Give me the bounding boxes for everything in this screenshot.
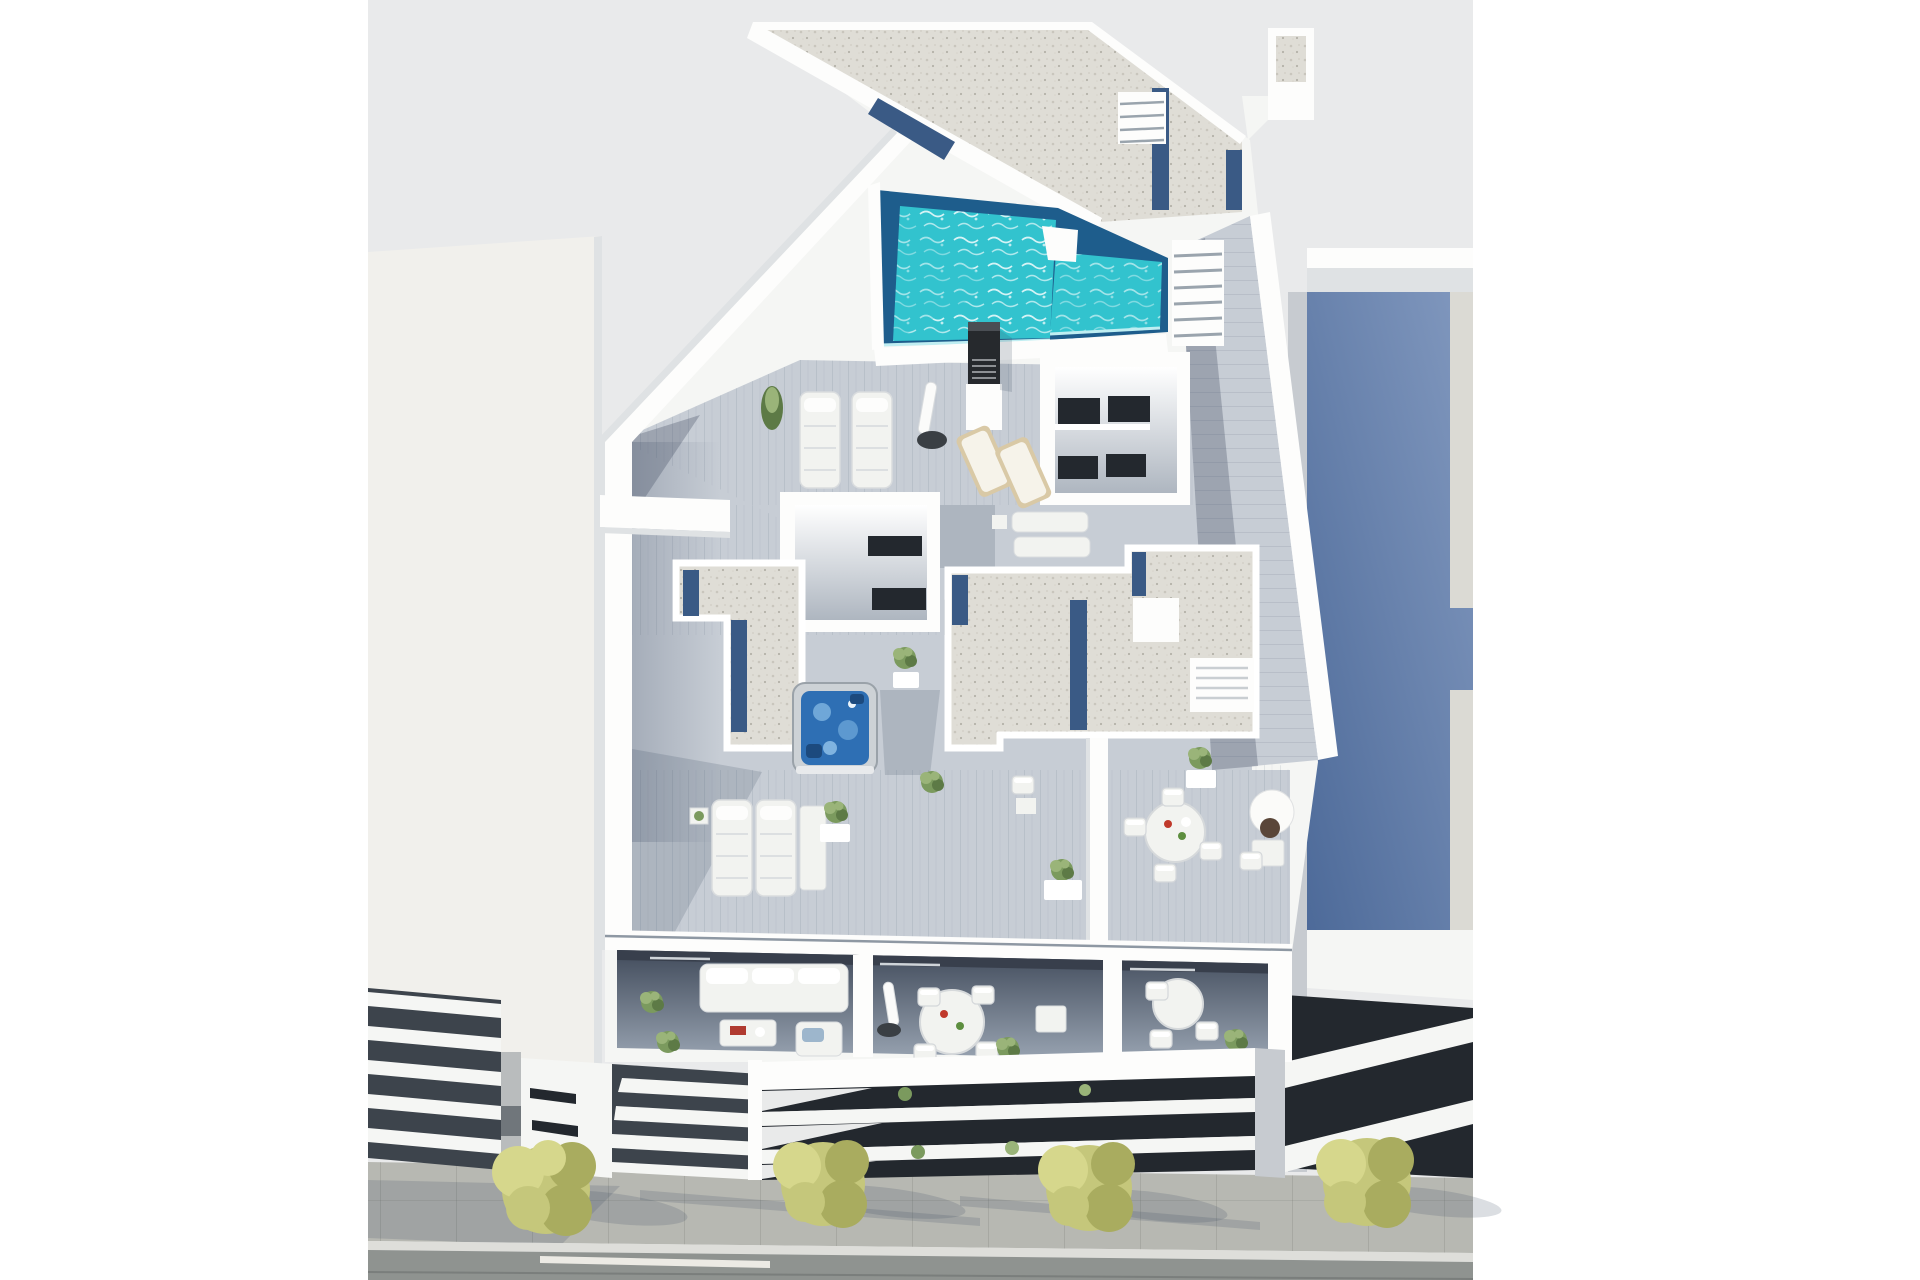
plant-roof-navy xyxy=(1132,552,1146,596)
left-neighbor-building xyxy=(368,236,612,1178)
plant-roof-navy xyxy=(952,575,968,625)
padded-lounger xyxy=(852,392,892,488)
sofa-cushion xyxy=(706,968,748,984)
left-neighbor-wall-plane xyxy=(368,236,602,1065)
balcony-end-wall xyxy=(1268,962,1292,1062)
chair xyxy=(1146,982,1168,1000)
side-table xyxy=(1036,1006,1066,1032)
chair xyxy=(918,988,940,1006)
planter-box xyxy=(1044,880,1082,900)
chair xyxy=(1154,864,1176,882)
terrace-divider-wall-east xyxy=(1090,738,1108,952)
table-decor-red xyxy=(1164,820,1172,828)
sofa-cushion xyxy=(752,968,794,984)
parasol-base xyxy=(1260,818,1280,838)
flat-lounger xyxy=(1012,512,1088,532)
balcony-divider xyxy=(853,955,873,1057)
bulkhead1-window xyxy=(1106,454,1146,477)
chair xyxy=(1196,1022,1218,1040)
hot-tub-foam xyxy=(813,703,831,721)
sun-lounger xyxy=(712,800,752,896)
facade-plant xyxy=(911,1145,925,1159)
round-dining-table xyxy=(1145,802,1205,862)
table-decor-green xyxy=(956,1022,964,1030)
left-neighbor-pillar-band xyxy=(501,1106,521,1136)
hot-tub-foam xyxy=(838,720,858,740)
plant-roof-notch xyxy=(1133,598,1179,642)
padded-lounger xyxy=(800,392,840,488)
hot-tub-foam xyxy=(823,741,837,755)
planter-box xyxy=(820,824,850,842)
plant-roof-right xyxy=(948,548,1256,748)
pool-caustics2 xyxy=(893,206,1056,341)
sofa-cushion xyxy=(798,968,840,984)
facade-right-return xyxy=(1255,1048,1285,1178)
facade-plant xyxy=(1005,1141,1019,1155)
hot-tub xyxy=(793,683,877,774)
flat-lounger xyxy=(1014,537,1090,557)
closet-box xyxy=(1190,658,1254,712)
chimney-top xyxy=(968,322,1000,331)
tree xyxy=(1316,1137,1414,1228)
parasol-base xyxy=(917,431,947,449)
chair xyxy=(972,986,994,1004)
plant-roof-navy xyxy=(683,570,699,616)
facade-left-wing xyxy=(612,1064,760,1180)
chair xyxy=(1124,818,1146,836)
facade-plant xyxy=(1079,1084,1091,1096)
chimney-base xyxy=(966,384,1002,430)
ne-box-gravel-tx xyxy=(1276,36,1306,82)
plant-roof-navy xyxy=(731,620,747,732)
bulkhead1-window xyxy=(1108,396,1150,422)
sun-lounger xyxy=(756,800,796,896)
parasol-base xyxy=(877,1023,901,1037)
terrace-divider-wall-north xyxy=(600,495,730,532)
roof-navy-strip xyxy=(1226,150,1242,210)
balcony-divider xyxy=(1103,958,1122,1060)
bulkhead1-window xyxy=(1058,398,1100,424)
coffee-table-plate xyxy=(755,1027,765,1037)
louvered-closet xyxy=(1190,658,1254,712)
table-decor-green xyxy=(1178,832,1186,840)
cypress-highlight xyxy=(765,387,779,413)
hot-tub-seat xyxy=(850,694,864,704)
right-neighbor-parapet xyxy=(1307,248,1473,268)
chair xyxy=(1012,776,1034,794)
table-plant xyxy=(694,811,704,821)
right-neighbor-south-wall xyxy=(1307,930,1473,1000)
side-table xyxy=(1016,798,1036,814)
chair xyxy=(1200,842,1222,860)
planter-box xyxy=(893,672,919,688)
upper-stairs xyxy=(1118,92,1166,144)
chimney-shadow xyxy=(1000,330,1012,392)
deck-shadow-stairwell xyxy=(940,505,995,568)
deck-shelf xyxy=(800,806,826,890)
stairwell-bulkhead-1 xyxy=(1040,352,1190,505)
planter-box xyxy=(1186,770,1216,788)
balcony-level xyxy=(617,950,1292,1062)
bulkhead1-sill xyxy=(1055,424,1150,430)
chair xyxy=(1162,788,1184,806)
hot-tub-step xyxy=(796,766,874,774)
terrace-divider-wall-east-shade xyxy=(1086,738,1090,952)
daybed-pillow xyxy=(802,1028,824,1042)
coffee-table-tray xyxy=(730,1026,746,1035)
facade-plant xyxy=(898,1087,912,1101)
table-plate xyxy=(1181,817,1191,827)
chair xyxy=(1240,852,1262,870)
coffee-table xyxy=(720,1020,776,1046)
plant-roof-navy xyxy=(1070,600,1087,730)
hot-tub-seat xyxy=(806,744,822,758)
pool-step xyxy=(1042,226,1078,262)
bulkhead2-window xyxy=(872,588,926,610)
right-neighbor-upper-wall xyxy=(1307,268,1473,292)
deck-shadow-jacuzzi xyxy=(880,690,940,775)
architectural-render xyxy=(0,0,1920,1280)
bulkhead2-window xyxy=(868,536,922,556)
side-table xyxy=(992,515,1007,529)
chair xyxy=(1150,1030,1172,1048)
right-neighbor-blue-roof xyxy=(1307,292,1473,930)
plant-roof-right-tx xyxy=(948,548,1256,748)
left-neighbor-louver-facade xyxy=(368,988,501,1170)
facade-corner-pillar xyxy=(748,1060,762,1180)
pool-stairs xyxy=(1172,240,1224,346)
bulkhead1-window xyxy=(1058,456,1098,479)
lower-terrace-furniture xyxy=(690,800,850,896)
render-stage xyxy=(0,0,1920,1280)
chimney-body xyxy=(968,322,1000,384)
table-decor-red xyxy=(940,1010,948,1018)
